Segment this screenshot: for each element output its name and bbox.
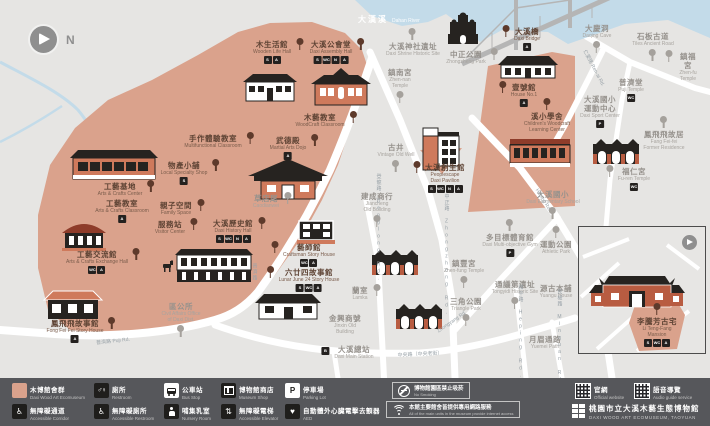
tree-pin-icon: [664, 50, 673, 63]
site-name-zh: 藝師館: [283, 243, 335, 252]
site-name-zh: 鳳飛飛故居: [643, 130, 684, 139]
site-name-en: Daxi Sport Center: [580, 113, 620, 119]
building-children-woodcraft-learning-center: [506, 131, 574, 173]
legend-sublabel: Accessible Restroom: [112, 416, 154, 421]
site-puji-temple: 普濟堂Puji TempleWC: [618, 78, 644, 102]
site-name-en: Daxi Bridge: [514, 36, 540, 42]
site-zhen-fu-temple: 鎮福宮Zhen-fu Temple: [677, 52, 699, 82]
legend-restroom: ♂♀ 廁所Restroom: [94, 383, 132, 400]
site-arts-crafts-exchange-hall: 工藝交流館Arts & Crafts Exchange HallWCA: [66, 250, 128, 274]
accessible-icon: A: [314, 284, 322, 292]
note-sublabel: All of the main units in the museum prov…: [409, 411, 514, 416]
legend-label: 無障礙電梯: [239, 405, 278, 415]
accessible-icon: A: [523, 43, 531, 51]
site-name-zh: 草店尾: [253, 194, 279, 203]
site-name-zh: 六廿四故事館: [279, 268, 340, 277]
road-label: 普濟路: [252, 263, 259, 281]
legend-sublabel: Accessible Elevator: [239, 416, 278, 421]
building-lunar-june-24-story-house: [253, 290, 323, 324]
facility-badges: WC: [618, 94, 644, 102]
shop-icon: S: [644, 339, 652, 347]
site-name-en: Craftsman Story House: [283, 252, 335, 258]
tree-pin-icon: [412, 161, 421, 174]
compass-north-label: N: [66, 33, 75, 47]
facility-badges: SA: [253, 56, 291, 64]
site-name-zh: 大溪創生館: [425, 163, 465, 172]
site-zhongzheng-park: 中正公園Zhongzheng Park: [446, 50, 485, 65]
site-name-zh: 多目標體育館: [482, 233, 537, 242]
legend-sublabel: Accessible Corridor: [30, 416, 69, 421]
site-name-en: Daxi Multi-objective Gym: [482, 242, 537, 248]
facility-badges: A: [95, 215, 149, 223]
site-family-space: 親子空間Family Space: [160, 201, 192, 216]
accessible-icon: A: [310, 259, 318, 267]
site-name-zh: 中正公園: [446, 50, 485, 59]
road-label: 中正路 Zhongzheng Rd.: [444, 194, 451, 317]
site-name-en: Daqing Cave: [583, 33, 612, 39]
museum-area-swatch-icon: [12, 383, 27, 398]
facility-badges: SWCA: [279, 284, 340, 292]
site-name-en: Fang Fei-fei Former Residence: [643, 139, 684, 151]
facility-badges: SWCNA: [310, 56, 353, 64]
note-sublabel: No Smoking: [414, 392, 464, 397]
shop-icon: S: [264, 56, 272, 64]
site-vintage-old-well: 古井Vintage Old Well: [377, 143, 414, 158]
brand-name-zh: 桃園市立大溪木藝生態博物館: [589, 403, 700, 414]
site-name-zh: 手作體驗教室: [184, 134, 241, 143]
legend-label: 停車場: [303, 384, 326, 394]
site-name-en: Li Teng-Fang Mansion: [633, 326, 681, 338]
aed-heart-icon: ♥: [285, 404, 300, 419]
legend-label: 無障礙廁所: [112, 405, 154, 415]
site-wooden-life-hall: 木生活館Wooden Life HallSA: [253, 40, 291, 64]
shop-icon: S: [216, 235, 224, 243]
site-name-zh: 工藝交流館: [66, 250, 128, 259]
qr-official-website: 官網Official website: [575, 383, 624, 400]
tree-pin-icon: [310, 134, 319, 147]
site-name-zh: 李騰芳古宅: [633, 317, 681, 326]
tree-pin-icon: [501, 25, 510, 38]
tree-pin-icon: [266, 266, 275, 279]
shop-icon: S: [296, 284, 304, 292]
restroom-icon: WC: [630, 183, 638, 191]
building-li-teng-fang-mansion: [589, 276, 685, 307]
site-name-zh: 運動公園: [540, 240, 572, 249]
elevator-icon: ⇅: [221, 404, 236, 419]
site-name-zh: 大溪神社遺址: [386, 42, 440, 51]
legend-accessible-corridor: ♿ 無障礙通道Accessible Corridor: [12, 404, 69, 421]
restroom-icon: WC: [322, 56, 330, 64]
legend-sublabel: AED: [303, 416, 380, 421]
site-daxi-assembly-hall: 大溪公會堂Daxi Assembly HallSWCNA: [310, 40, 353, 64]
site-name-zh: 古井: [377, 143, 414, 152]
legend-parking: P 停車場Parking Lot: [285, 383, 326, 400]
building-craftsman-story-house: [294, 214, 338, 246]
site-name-zh: 大溪國小 運動中心: [580, 95, 620, 113]
site-triangle-park: 三角公園Triangle Park: [450, 297, 482, 312]
site-jinxin-old-building: 金興商號Jinxin Old Building: [329, 314, 361, 335]
site-name-en: Caodianwei: [253, 203, 279, 209]
tree-pin-icon: [395, 91, 404, 104]
site-name-en: Arts & Crafts Center: [98, 191, 143, 197]
facility-badges: A: [270, 152, 307, 160]
site-peoplescape-daxi-pavilion: 大溪創生館Peoplescape Daxi PavilionSWCNA: [425, 163, 465, 193]
site-name-en: Lamka: [352, 295, 368, 301]
site-name-en: Multifunctional Classroom: [184, 143, 241, 149]
building-house-no-1: [496, 52, 560, 82]
site-woodcraft-classroom: 木藝教室WoodCraft Classroom: [295, 113, 344, 128]
facility-badges: S: [161, 177, 208, 185]
tree-pin-icon: [211, 159, 220, 172]
site-name-zh: 工藝教室: [95, 199, 149, 208]
accessible-icon: A: [273, 56, 281, 64]
tree-pin-icon: [107, 317, 116, 330]
restroom-icon: WC: [225, 235, 233, 243]
legend-nursery: 哺集乳室Nursery Room: [164, 404, 211, 421]
site-name-zh: 金興商號: [329, 314, 361, 323]
site-daxi-shrine-historic-site: 大溪神社遺址Daxi Shrine Historic Site: [386, 42, 440, 57]
tree-pin-icon: [246, 132, 255, 145]
inset-li-teng-fang-mansion: 李騰芳古宅Li Teng-Fang MansionSWCA: [578, 226, 706, 354]
site-name-zh: 親子空間: [160, 201, 192, 210]
site-name-en: Fu-ren Temple: [618, 176, 650, 182]
site-name-en: House No.1: [511, 92, 537, 98]
site-name-en: Zhen-nan Temple: [388, 77, 412, 89]
facility-badges: WCA: [283, 259, 335, 267]
wifi-icon: [392, 405, 405, 415]
site-name-zh: 木藝教室: [295, 113, 344, 122]
site-name-zh: 鎮福宮: [677, 52, 699, 70]
parking-icon: P: [596, 120, 604, 128]
tree-pin-icon: [659, 116, 668, 129]
site-fang-fei-fei-former-residence: 鳳飛飛故居Fang Fei-fei Former Residence: [643, 130, 684, 151]
facility-badges: P: [580, 120, 620, 128]
accessible-icon: A: [118, 215, 126, 223]
qr-code-icon: [634, 383, 650, 399]
site-name-en: Daxi Assembly Hall: [310, 49, 353, 55]
nursery-icon: N: [234, 235, 242, 243]
deer-icon: [160, 260, 176, 273]
restroom-icon: WC: [305, 284, 313, 292]
compass-arrow-icon: [39, 33, 50, 45]
facility-badges: WC: [618, 183, 650, 191]
site-name-en: Jinxin Old Building: [329, 323, 361, 335]
wheelchair-icon: ♿: [12, 404, 27, 419]
river-label: 大漢溪 Dahan River: [358, 14, 420, 25]
site-fu-ren-temple: 福仁宮Fu-ren TempleWC: [618, 167, 650, 191]
site-name-zh: 普濟堂: [618, 78, 644, 87]
site-name-en: Triangle Park: [450, 306, 482, 312]
site-name-zh: 大溪歷史館: [213, 219, 253, 228]
site-name-en: Tongyidi Historic Site: [492, 289, 538, 295]
site-arts-crafts-center: 工藝基地Arts & Crafts Center: [98, 182, 143, 197]
museum-logo-icon: [572, 404, 585, 418]
nursery-icon: N: [331, 56, 339, 64]
legend-bus-stop: 公車站Bus Stop: [164, 383, 203, 400]
legend-sublabel: Restroom: [112, 395, 132, 400]
site-name-en: Daxi Elementary School: [526, 199, 579, 205]
tree-pin-icon: [283, 192, 292, 205]
site-name-en: Local Specialty Shop: [161, 170, 208, 176]
building-daxi-assembly-hall: [309, 66, 373, 108]
accessible-icon: A: [71, 335, 79, 343]
site-name-en: Martial Arts Dojo: [270, 145, 307, 151]
restroom-icon: WC: [89, 266, 97, 274]
site-name-en: Daxi Main Station: [334, 354, 373, 360]
accessible-icon: A: [455, 185, 463, 193]
tree-pin-icon: [146, 180, 155, 193]
brand-name-en: DAXI WOOD ART ECOMUSEUM, TAOYUAN: [589, 415, 700, 420]
legend-aed: ♥ 自動體外心臟電擊去顫器AED: [285, 404, 380, 421]
site-name-zh: 通議第遺址: [492, 280, 538, 289]
site-service-station: 服務站Visitor Center: [155, 220, 185, 235]
site-arts-crafts-classroom: 工藝教室Arts & Crafts ClassroomA: [95, 199, 149, 223]
accessible-icon: A: [98, 266, 106, 274]
site-lunar-june-24-story-house: 六廿四故事館Lunar June 24 Story HouseSWCA: [279, 268, 340, 292]
building-daxi-history-hall: [172, 242, 256, 294]
site-zhen-nan-temple: 鎮南宮Zhen-nan Temple: [388, 68, 412, 89]
facility-badges: B: [321, 347, 329, 355]
tree-pin-icon: [349, 111, 358, 124]
qr-label: 官網: [594, 384, 624, 394]
tree-pin-icon: [498, 81, 507, 94]
site-name-en: Athletic Park: [540, 249, 572, 255]
restroom-icon: ♂♀: [94, 383, 109, 398]
tree-pin-icon: [551, 226, 560, 239]
qr-code-icon: [575, 383, 591, 399]
site-tongyidi-historic-site: 通議第遺址Tongyidi Historic Site: [492, 280, 538, 295]
site-name-en: Zhen-fu Temple: [677, 70, 699, 82]
legend-label: 木博館舍群: [30, 384, 85, 394]
tree-pin-icon: [391, 160, 400, 173]
stream-branch: [0, 106, 62, 142]
site-name-zh: 鎮南宮: [388, 68, 412, 77]
site-name-zh: 溪小學舍: [524, 112, 570, 121]
legend-sublabel: Daxi Wood Art Ecomuseum: [30, 395, 85, 400]
site-local-specialty-shop: 物產小舖Local Specialty ShopS: [161, 161, 208, 185]
tree-pin-icon: [189, 218, 198, 231]
site-name-en: Daxi Shrine Historic Site: [386, 51, 440, 57]
brand: 桃園市立大溪木藝生態博物館 DAXI WOOD ART ECOMUSEUM, T…: [572, 402, 700, 420]
nursery-icon: N: [446, 185, 454, 193]
accessible-icon: A: [284, 152, 292, 160]
no-smoking-icon: [398, 385, 410, 397]
site-name-zh: 工藝基地: [98, 182, 143, 191]
tree-pin-icon: [372, 284, 381, 297]
site-name-en: Zhongzheng Park: [446, 59, 485, 65]
bus-icon: [164, 383, 179, 398]
site-name-zh: 木生活館: [253, 40, 291, 49]
accessible-icon: A: [340, 56, 348, 64]
daxi-bridge-gate-tower: [445, 10, 481, 46]
site-caodianwei: 草店尾Caodianwei: [253, 194, 279, 209]
site-name-en: Wooden Life Hall: [253, 49, 291, 55]
note-label: 本館主要館舍皆提供專用網路服務: [409, 403, 514, 411]
legend-accessible-elevator: ⇅ 無障礙電梯Accessible Elevator: [221, 404, 278, 421]
tree-pin-icon: [132, 248, 141, 261]
inset-compass-icon: [682, 235, 697, 250]
accessible-restroom-icon: ♿: [94, 404, 109, 419]
nursery-icon: [164, 404, 179, 419]
site-name-en: Puji Temple: [618, 87, 644, 93]
site-daxi-history-hall: 大溪歷史館Daxi History HallSWCNA: [213, 219, 253, 243]
legend-label: 公車站: [182, 384, 203, 394]
site-name-zh: 物產小舖: [161, 161, 208, 170]
legend-museum-shop: 博物館商店Museum Shop: [221, 383, 274, 400]
legend-sublabel: Bus Stop: [182, 395, 203, 400]
road-label: 民權路 Minquan Rd.: [557, 289, 564, 391]
tree-pin-icon: [652, 303, 661, 316]
site-name-en: Vintage Old Well: [377, 152, 414, 158]
river-name-zh: 大漢溪: [358, 14, 388, 25]
facility-badges: SWCNA: [425, 185, 465, 193]
site-name-en: Lunar June 24 Story House: [279, 277, 340, 283]
site-daxi-sport-center: 大溪國小 運動中心Daxi Sport CenterP: [580, 95, 620, 128]
tree-pin-icon: [295, 38, 304, 51]
daxi-ecomuseum-map: 大漢溪 Dahan River N 木生活館Wooden Life HallSA…: [0, 0, 710, 426]
tree-pin-icon: [459, 276, 468, 289]
tree-pin-icon: [490, 48, 499, 61]
legend-bar: 木博館舍群Daxi Wood Art Ecomuseum ♂♀ 廁所Restro…: [0, 378, 710, 426]
qr-label: 語音導覽: [653, 384, 692, 394]
site-craftsman-story-house: 藝師館Craftsman Story HouseWCA: [283, 243, 335, 267]
accessible-icon: A: [243, 235, 251, 243]
tree-pin-icon: [605, 165, 614, 178]
site-name-zh: 三角公園: [450, 297, 482, 306]
old-street-facade-row: [592, 139, 640, 167]
legend-accessible-restroom: ♿ 無障礙廁所Accessible Restroom: [94, 404, 154, 421]
legend-label: 博物館商店: [239, 384, 274, 394]
tree-pin-icon: [542, 98, 551, 111]
site-name-zh: 大溪橋: [514, 27, 540, 36]
site-name-zh: 壹號館: [511, 83, 537, 92]
site-name-zh: 福仁宮: [618, 167, 650, 176]
gift-icon: [221, 383, 236, 398]
site-name-en: Arts & Crafts Exchange Hall: [66, 259, 128, 265]
facility-badges: A: [511, 99, 537, 107]
restroom-icon: WC: [301, 259, 309, 267]
site-name-en: Civil Affairs Office of Daxi Dist.: [162, 311, 201, 323]
site-daxi-main-station: 大溪總站Daxi Main StationB: [334, 345, 373, 360]
site-athletic-park: 運動公園Athletic Park: [540, 240, 572, 255]
legend-sublabel: Museum Shop: [239, 395, 274, 400]
compass: N: [30, 26, 86, 54]
site-civil-affairs-office: 區公所Civil Affairs Office of Daxi Dist.: [162, 302, 201, 323]
site-name-zh: 大溪總站: [334, 345, 373, 354]
site-name-en: Fong Fei Fei Story House: [47, 328, 104, 334]
tree-pin-icon: [505, 219, 514, 232]
accessible-icon: A: [662, 339, 670, 347]
site-daqing-cave: 大慶洞Daqing Cave: [583, 24, 612, 39]
qr-audio-guide: 語音導覽Audio guide service: [634, 383, 692, 400]
tree-pin-icon: [270, 241, 279, 254]
site-name-zh: 服務站: [155, 220, 185, 229]
legend-sublabel: Parking Lot: [303, 395, 326, 400]
site-children-woodcraft-learning-center: 溪小學舍Children's Woodcraft Learning Center: [524, 112, 570, 133]
facility-badges: P: [482, 249, 537, 257]
site-tiles-ancient-road: 石板古道Tiles Ancient Road: [632, 32, 674, 47]
site-li-teng-fang-mansion: 李騰芳古宅Li Teng-Fang MansionSWCA: [633, 317, 681, 347]
site-lamka: 蘭室Lamka: [352, 286, 368, 301]
facility-badges: SWCA: [633, 339, 681, 347]
legend-label: 無障礙通道: [30, 405, 69, 415]
site-name-zh: 武德殿: [270, 136, 307, 145]
parking-icon: P: [285, 383, 300, 398]
restroom-icon: WC: [627, 94, 635, 102]
building-wooden-life-hall: [241, 68, 299, 106]
facility-badges: A: [514, 43, 540, 51]
note-label: 博物館園區禁止吸菸: [414, 384, 464, 392]
site-name-zh: 石板古道: [632, 32, 674, 41]
site-name-en: Family Space: [160, 210, 192, 216]
tree-pin-icon: [408, 28, 417, 41]
shop-icon: S: [180, 177, 188, 185]
restroom-icon: WC: [437, 185, 445, 193]
site-name-en: Tiles Ancient Road: [632, 41, 674, 47]
site-martial-arts-dojo: 武德殿Martial Arts DojoA: [270, 136, 307, 160]
road-label: 登龍路 Denglong Rd.: [376, 174, 383, 283]
tree-pin-icon: [356, 38, 365, 51]
qr-sublabel: Official website: [594, 395, 624, 400]
tree-pin-icon: [257, 217, 266, 230]
map-canvas: 大漢溪 Dahan River N 木生活館Wooden Life HallSA…: [0, 0, 710, 378]
river-name-en: Dahan River: [392, 18, 420, 24]
facility-badges: WCA: [66, 266, 128, 274]
shop-icon: S: [428, 185, 436, 193]
site-name-en: Children's Woodcraft Learning Center: [524, 121, 570, 133]
legend-label: 自動體外心臟電擊去顫器: [303, 405, 380, 415]
site-name-zh: 大溪公會堂: [310, 40, 353, 49]
site-name-en: WoodCraft Classroom: [295, 122, 344, 128]
site-name-zh: 蘭室: [352, 286, 368, 295]
bus-icon: B: [321, 347, 329, 355]
legend-label: 廁所: [112, 384, 132, 394]
tree-pin-icon: [176, 325, 185, 338]
note-no-smoking: 博物館園區禁止吸菸No Smoking: [392, 382, 470, 399]
tree-pin-icon: [592, 41, 601, 54]
restroom-icon: WC: [653, 339, 661, 347]
tree-pin-icon: [648, 49, 657, 62]
qr-sublabel: Audio guide service: [653, 395, 692, 400]
site-house-no-1: 壹號館House No.1A: [511, 83, 537, 107]
site-name-zh: 區公所: [162, 302, 201, 311]
site-name-en: Arts & Crafts Classroom: [95, 208, 149, 214]
site-name-zh: 大慶洞: [583, 24, 612, 33]
accessible-icon: A: [520, 99, 528, 107]
site-name-zh: 鳳飛飛故事館: [47, 319, 104, 328]
site-daxi-bridge: 大溪橋Daxi BridgeA: [514, 27, 540, 51]
old-street-facade-row: [395, 304, 443, 332]
legend-sublabel: Nursery Room: [182, 416, 211, 421]
shop-icon: S: [313, 56, 321, 64]
note-wifi: 本館主要館舍皆提供專用網路服務All of the main units in …: [386, 401, 520, 418]
parking-icon: P: [506, 249, 514, 257]
tree-pin-icon: [196, 199, 205, 212]
site-multifunction-classroom: 手作體驗教室Multifunctional Classroom: [184, 134, 241, 149]
site-name-en: Daxi History Hall: [213, 228, 253, 234]
facility-badges: SWCNA: [213, 235, 253, 243]
legend-museum-area: 木博館舍群Daxi Wood Art Ecomuseum: [12, 383, 85, 400]
site-name-en: Peoplescape Daxi Pavilion: [425, 172, 465, 184]
legend-label: 哺集乳室: [182, 405, 211, 415]
site-name-en: Visitor Center: [155, 229, 185, 235]
site-multi-objective-gym: 多目標體育館Daxi Multi-objective GymP: [482, 233, 537, 257]
road-label: 和平路 Heping Rd.: [518, 285, 525, 380]
